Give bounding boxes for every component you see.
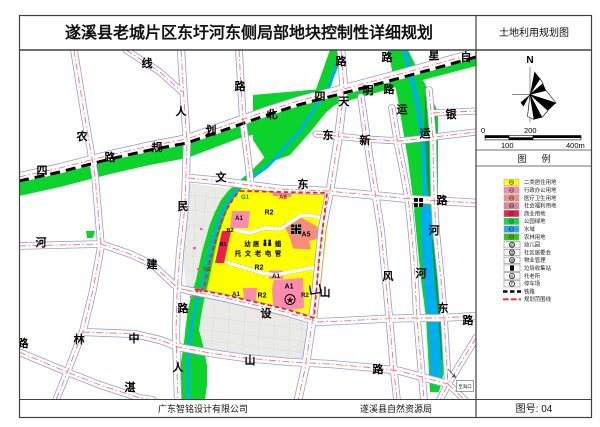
svg-text:文: 文 bbox=[216, 170, 228, 184]
svg-text:规划范围线: 规划范围线 bbox=[524, 295, 552, 303]
svg-text:河: 河 bbox=[429, 223, 440, 237]
svg-text:商业用地: 商业用地 bbox=[524, 209, 546, 217]
svg-text:林: 林 bbox=[74, 332, 85, 346]
svg-text:路: 路 bbox=[105, 150, 117, 164]
svg-text:路: 路 bbox=[178, 301, 190, 315]
svg-text:社区居委会: 社区居委会 bbox=[524, 248, 552, 256]
svg-text:四: 四 bbox=[315, 90, 326, 103]
svg-text:湛: 湛 bbox=[125, 380, 136, 394]
svg-text:★: ★ bbox=[286, 295, 294, 305]
svg-text:G1: G1 bbox=[241, 195, 250, 201]
svg-text:运: 运 bbox=[397, 103, 408, 116]
svg-text:幼儿园: 幼儿园 bbox=[524, 241, 540, 249]
svg-text:老: 老 bbox=[254, 249, 262, 258]
svg-text:R2: R2 bbox=[255, 265, 264, 272]
svg-text:物: 物 bbox=[510, 258, 514, 263]
svg-text:银: 银 bbox=[446, 107, 458, 121]
svg-text:物业管理: 物业管理 bbox=[524, 256, 546, 264]
svg-text:管: 管 bbox=[275, 249, 282, 258]
svg-text:蜡: 蜡 bbox=[275, 239, 282, 248]
svg-text:东: 东 bbox=[323, 128, 334, 142]
svg-text:R2: R2 bbox=[265, 210, 274, 217]
svg-text:东: 东 bbox=[438, 301, 449, 315]
svg-text:A1: A1 bbox=[510, 188, 514, 192]
svg-text:图: 图 bbox=[517, 154, 526, 164]
svg-text:至海口: 至海口 bbox=[458, 383, 471, 390]
svg-text:R2: R2 bbox=[301, 293, 309, 299]
svg-text:山: 山 bbox=[320, 285, 331, 299]
svg-text:民: 民 bbox=[178, 200, 189, 213]
svg-text:明: 明 bbox=[363, 84, 374, 97]
svg-text:幼: 幼 bbox=[244, 239, 251, 248]
svg-text:B2: B2 bbox=[226, 228, 233, 234]
svg-text:托: 托 bbox=[510, 273, 514, 278]
svg-text:停车场: 停车场 bbox=[524, 280, 541, 288]
svg-text:新: 新 bbox=[360, 133, 371, 147]
svg-text:E2: E2 bbox=[510, 235, 514, 239]
svg-text:社会福利用地: 社会福利用地 bbox=[524, 202, 557, 210]
svg-text:二类居住用地: 二类居住用地 bbox=[524, 178, 557, 186]
svg-text:例: 例 bbox=[541, 153, 550, 164]
svg-text:北: 北 bbox=[267, 107, 278, 121]
svg-text:路: 路 bbox=[437, 193, 449, 207]
svg-text:G1: G1 bbox=[509, 220, 513, 224]
svg-text:文: 文 bbox=[244, 249, 252, 258]
svg-text:医疗卫生用地: 医疗卫生用地 bbox=[524, 194, 557, 202]
svg-text:中: 中 bbox=[129, 331, 140, 345]
svg-text:遂溪县自然资源局: 遂溪县自然资源局 bbox=[360, 403, 432, 414]
svg-text:四: 四 bbox=[37, 164, 48, 177]
svg-text:路: 路 bbox=[382, 50, 394, 64]
svg-text:垃圾收集站: 垃圾收集站 bbox=[524, 264, 552, 272]
svg-text:A1: A1 bbox=[272, 274, 280, 280]
svg-text:公园绿地: 公园绿地 bbox=[524, 217, 546, 225]
svg-text:路: 路 bbox=[463, 313, 475, 327]
svg-text:居: 居 bbox=[253, 240, 260, 248]
svg-text:线: 线 bbox=[142, 56, 153, 70]
svg-text:山: 山 bbox=[245, 353, 256, 367]
svg-text:0: 0 bbox=[481, 126, 485, 135]
svg-text:农林用地: 农林用地 bbox=[524, 233, 546, 241]
svg-text:B1: B1 bbox=[510, 212, 514, 216]
svg-text:托老所: 托老所 bbox=[524, 272, 541, 280]
svg-text:A1: A1 bbox=[232, 292, 240, 298]
svg-text:行政办公用地: 行政办公用地 bbox=[524, 186, 557, 194]
svg-text:400m: 400m bbox=[566, 141, 585, 150]
svg-text:河: 河 bbox=[36, 235, 47, 249]
svg-text:土地利用规划图: 土地利用规划图 bbox=[499, 26, 569, 39]
svg-text:人: 人 bbox=[176, 104, 188, 118]
svg-text:A6: A6 bbox=[279, 195, 287, 201]
svg-text:规: 规 bbox=[152, 140, 163, 154]
svg-text:路: 路 bbox=[384, 82, 396, 96]
svg-text:路: 路 bbox=[235, 79, 247, 93]
svg-text:A1: A1 bbox=[285, 284, 294, 291]
svg-text:水域: 水域 bbox=[524, 225, 535, 233]
svg-text:风: 风 bbox=[383, 269, 394, 283]
svg-text:图号: 04: 图号: 04 bbox=[516, 403, 553, 415]
svg-text:人: 人 bbox=[173, 360, 185, 374]
svg-text:运: 运 bbox=[420, 127, 431, 140]
svg-text:设: 设 bbox=[261, 306, 273, 320]
svg-text:居: 居 bbox=[510, 250, 514, 255]
svg-text:R2: R2 bbox=[258, 293, 267, 300]
svg-text:电: 电 bbox=[265, 249, 272, 258]
svg-text:A6: A6 bbox=[510, 204, 514, 208]
svg-text:B1: B1 bbox=[219, 242, 226, 248]
svg-text:幼: 幼 bbox=[510, 242, 514, 247]
svg-text:广东智铭设计有限公司: 广东智铭设计有限公司 bbox=[158, 403, 248, 414]
svg-text:农: 农 bbox=[76, 129, 88, 143]
svg-text:A5: A5 bbox=[510, 196, 514, 200]
svg-text:遂溪县老城片区东圩河东侧局部地块控制性详细规划: 遂溪县老城片区东圩河东侧局部地块控制性详细规划 bbox=[65, 23, 433, 42]
svg-text:自: 自 bbox=[461, 50, 472, 64]
svg-text:N: N bbox=[526, 55, 533, 66]
svg-text:A1: A1 bbox=[235, 216, 243, 222]
svg-text:星: 星 bbox=[429, 49, 440, 62]
svg-text:200: 200 bbox=[524, 126, 537, 135]
svg-text:A5: A5 bbox=[302, 232, 311, 239]
svg-text:铁路: 铁路 bbox=[524, 287, 535, 295]
svg-text:天: 天 bbox=[339, 95, 351, 108]
svg-text:路: 路 bbox=[373, 362, 385, 376]
svg-text:R2: R2 bbox=[509, 181, 513, 185]
svg-text:100: 100 bbox=[501, 141, 514, 150]
svg-text:东: 东 bbox=[298, 177, 309, 191]
svg-text:划: 划 bbox=[206, 123, 217, 137]
svg-text:托: 托 bbox=[235, 249, 242, 258]
svg-text:G1: G1 bbox=[203, 267, 212, 273]
svg-text:河: 河 bbox=[416, 266, 427, 280]
svg-text:路: 路 bbox=[336, 54, 348, 68]
svg-text:E1: E1 bbox=[510, 227, 514, 231]
svg-text:建: 建 bbox=[147, 257, 159, 271]
